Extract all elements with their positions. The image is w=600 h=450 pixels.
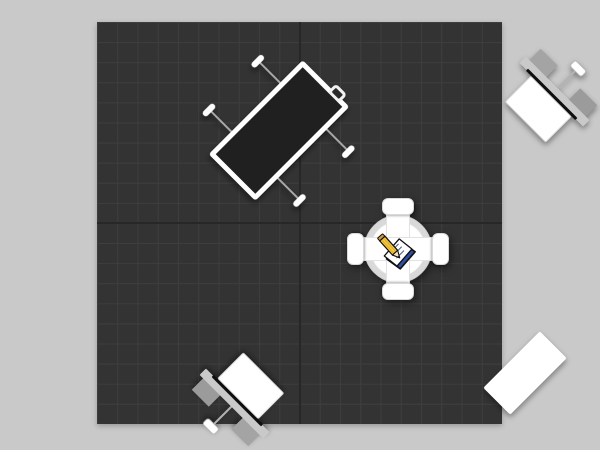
booth-plan-canvas <box>0 0 600 450</box>
table-leg <box>260 62 281 83</box>
kiosk-counter-cap <box>432 233 449 265</box>
notebook-pencil-logo-icon <box>374 225 422 273</box>
workstation-ne <box>507 49 598 140</box>
booth-floor <box>97 22 502 424</box>
table-leg <box>326 128 347 149</box>
table-leg <box>211 111 232 132</box>
display-table-nw <box>209 60 350 201</box>
workstation-sw <box>192 356 283 447</box>
kiosk-counter-cap <box>382 198 414 215</box>
table-leg <box>277 177 298 198</box>
kiosk-counter-cap <box>347 233 364 265</box>
kiosk-counter-cap <box>382 283 414 300</box>
table-se <box>483 331 566 414</box>
center-kiosk <box>347 198 449 300</box>
